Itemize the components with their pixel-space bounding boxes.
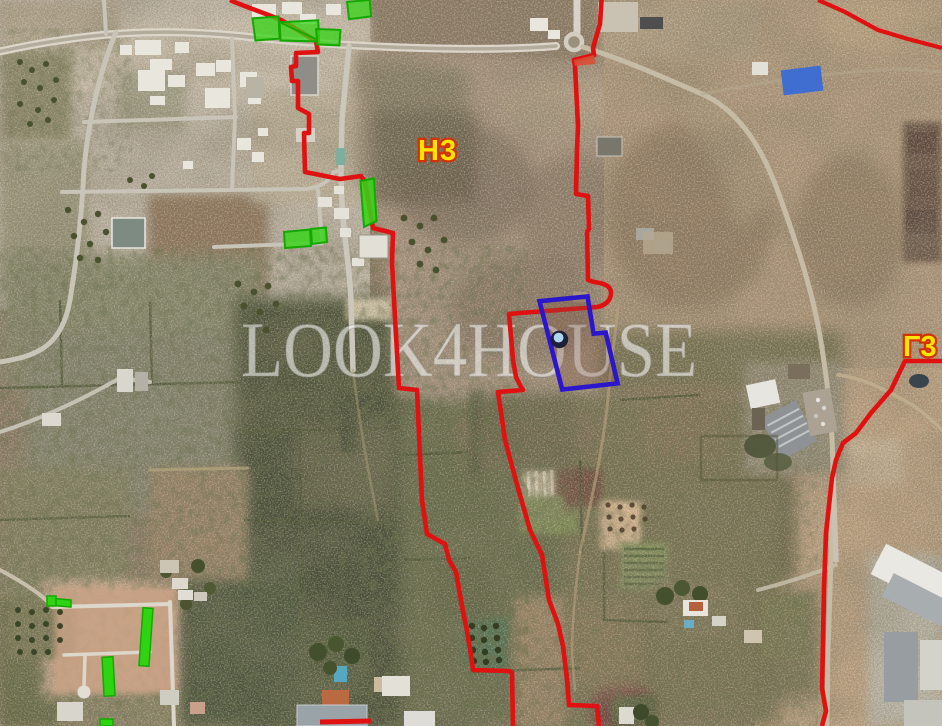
svg-text:LOOK4HOUSE: LOOK4HOUSE (241, 306, 697, 393)
svg-text:H3: H3 (418, 135, 457, 167)
svg-text:Γ3: Γ3 (903, 331, 937, 363)
